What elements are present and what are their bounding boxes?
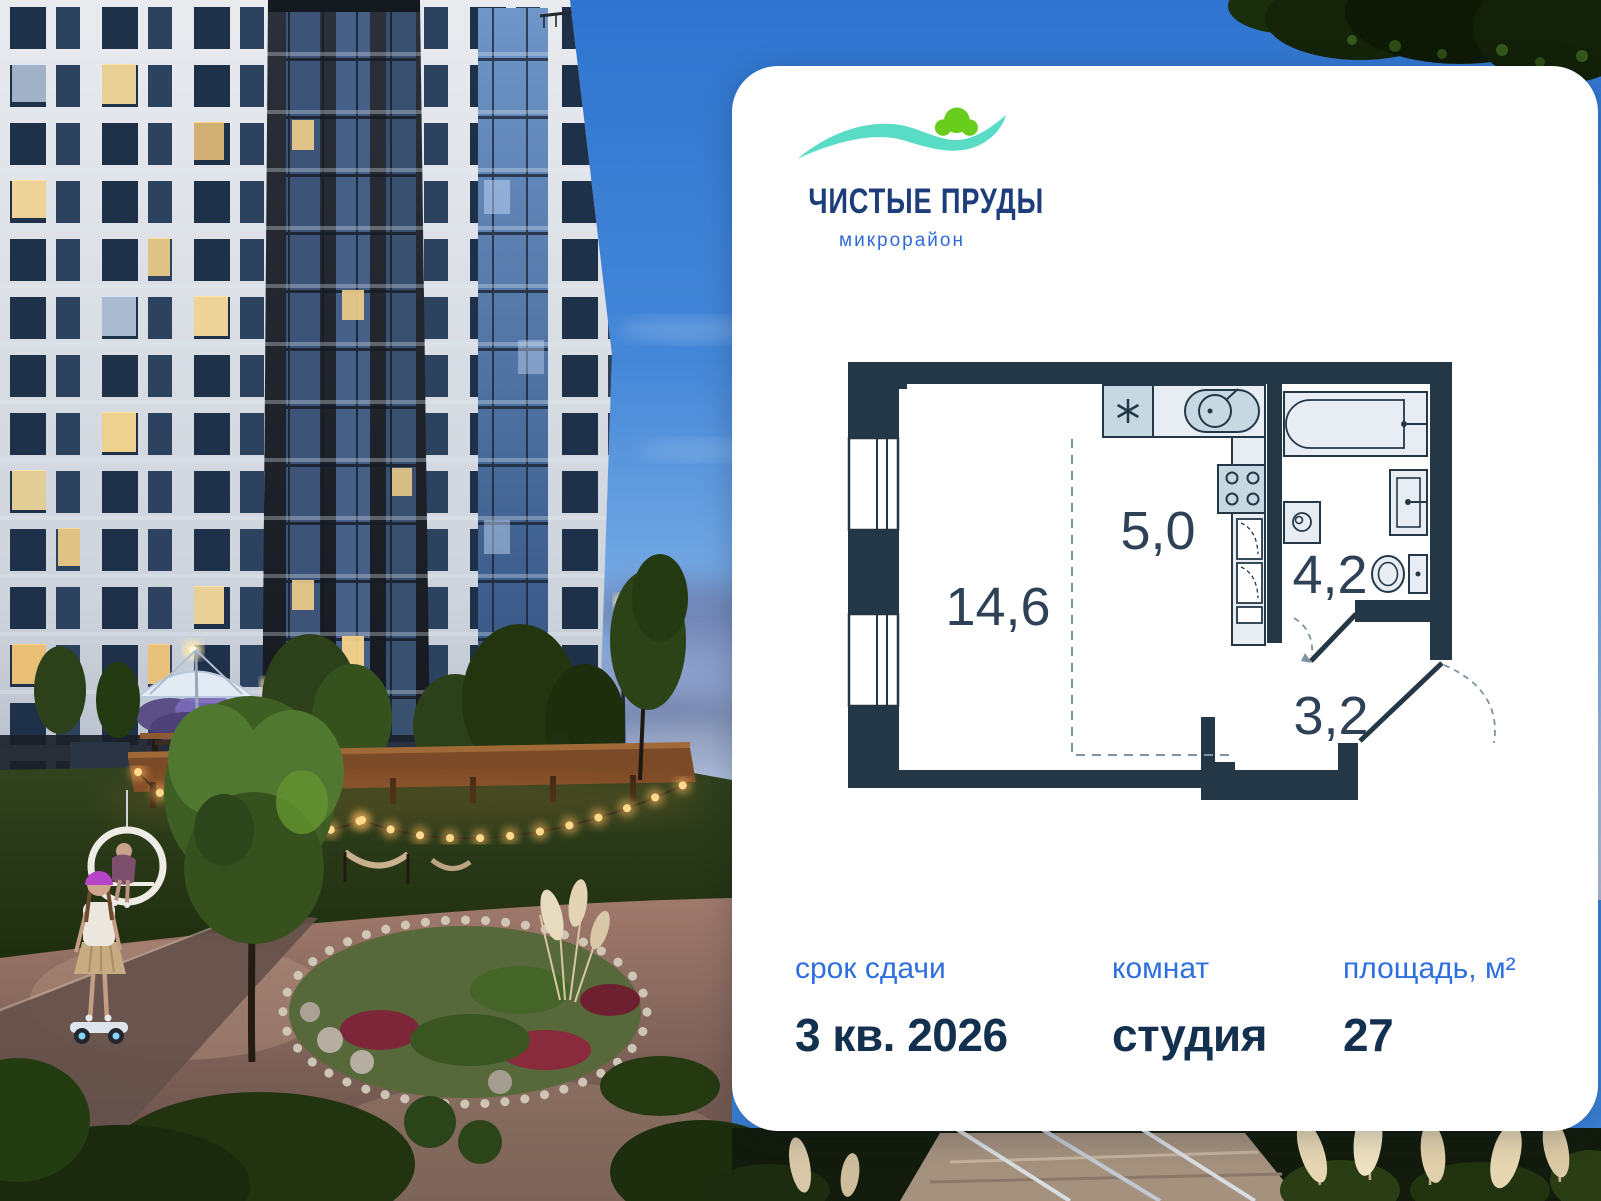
living-room-area: 14,6 bbox=[945, 577, 1050, 637]
area-value: 27 bbox=[1343, 1010, 1516, 1060]
kitchen-area: 5,0 bbox=[1120, 501, 1195, 561]
logo-subtitle: микрорайон bbox=[782, 230, 1022, 252]
detail-completion: срок сдачи 3 кв. 2026 bbox=[795, 952, 1008, 1060]
logo-icon bbox=[782, 102, 1022, 166]
interior-door bbox=[1294, 614, 1356, 663]
bathroom-area: 4,2 bbox=[1292, 545, 1367, 605]
tree-icon bbox=[935, 107, 978, 135]
logo: ЧИСТЫЕ ПРУДЫ микрорайон bbox=[782, 102, 1022, 262]
completion-value: 3 кв. 2026 bbox=[795, 1010, 1008, 1060]
toilet bbox=[1372, 556, 1404, 592]
floor-plan: 14,6 5,0 4,2 3,2 bbox=[848, 362, 1452, 800]
area-label: площадь, м² bbox=[1343, 952, 1516, 986]
stove bbox=[1218, 465, 1265, 513]
detail-rooms: комнат студия bbox=[1112, 952, 1267, 1060]
hallway-area: 3,2 bbox=[1293, 686, 1368, 746]
detail-area: площадь, м² 27 bbox=[1343, 952, 1516, 1060]
listing-banner: Подъезд 3 bbox=[0, 0, 1601, 1201]
kitchen-zone-boundary bbox=[1072, 439, 1232, 755]
rooms-label: комнат bbox=[1112, 952, 1267, 986]
completion-label: срок сдачи bbox=[795, 952, 1008, 986]
listing-card[interactable]: ЧИСТЫЕ ПРУДЫ микрорайон bbox=[732, 66, 1598, 1131]
rooms-value: студия bbox=[1112, 1010, 1267, 1060]
logo-title: ЧИСТЫЕ ПРУДЫ bbox=[808, 182, 995, 222]
details-row: срок сдачи 3 кв. 2026 комнат студия площ… bbox=[732, 952, 1598, 1082]
entrance-door bbox=[1360, 663, 1495, 743]
